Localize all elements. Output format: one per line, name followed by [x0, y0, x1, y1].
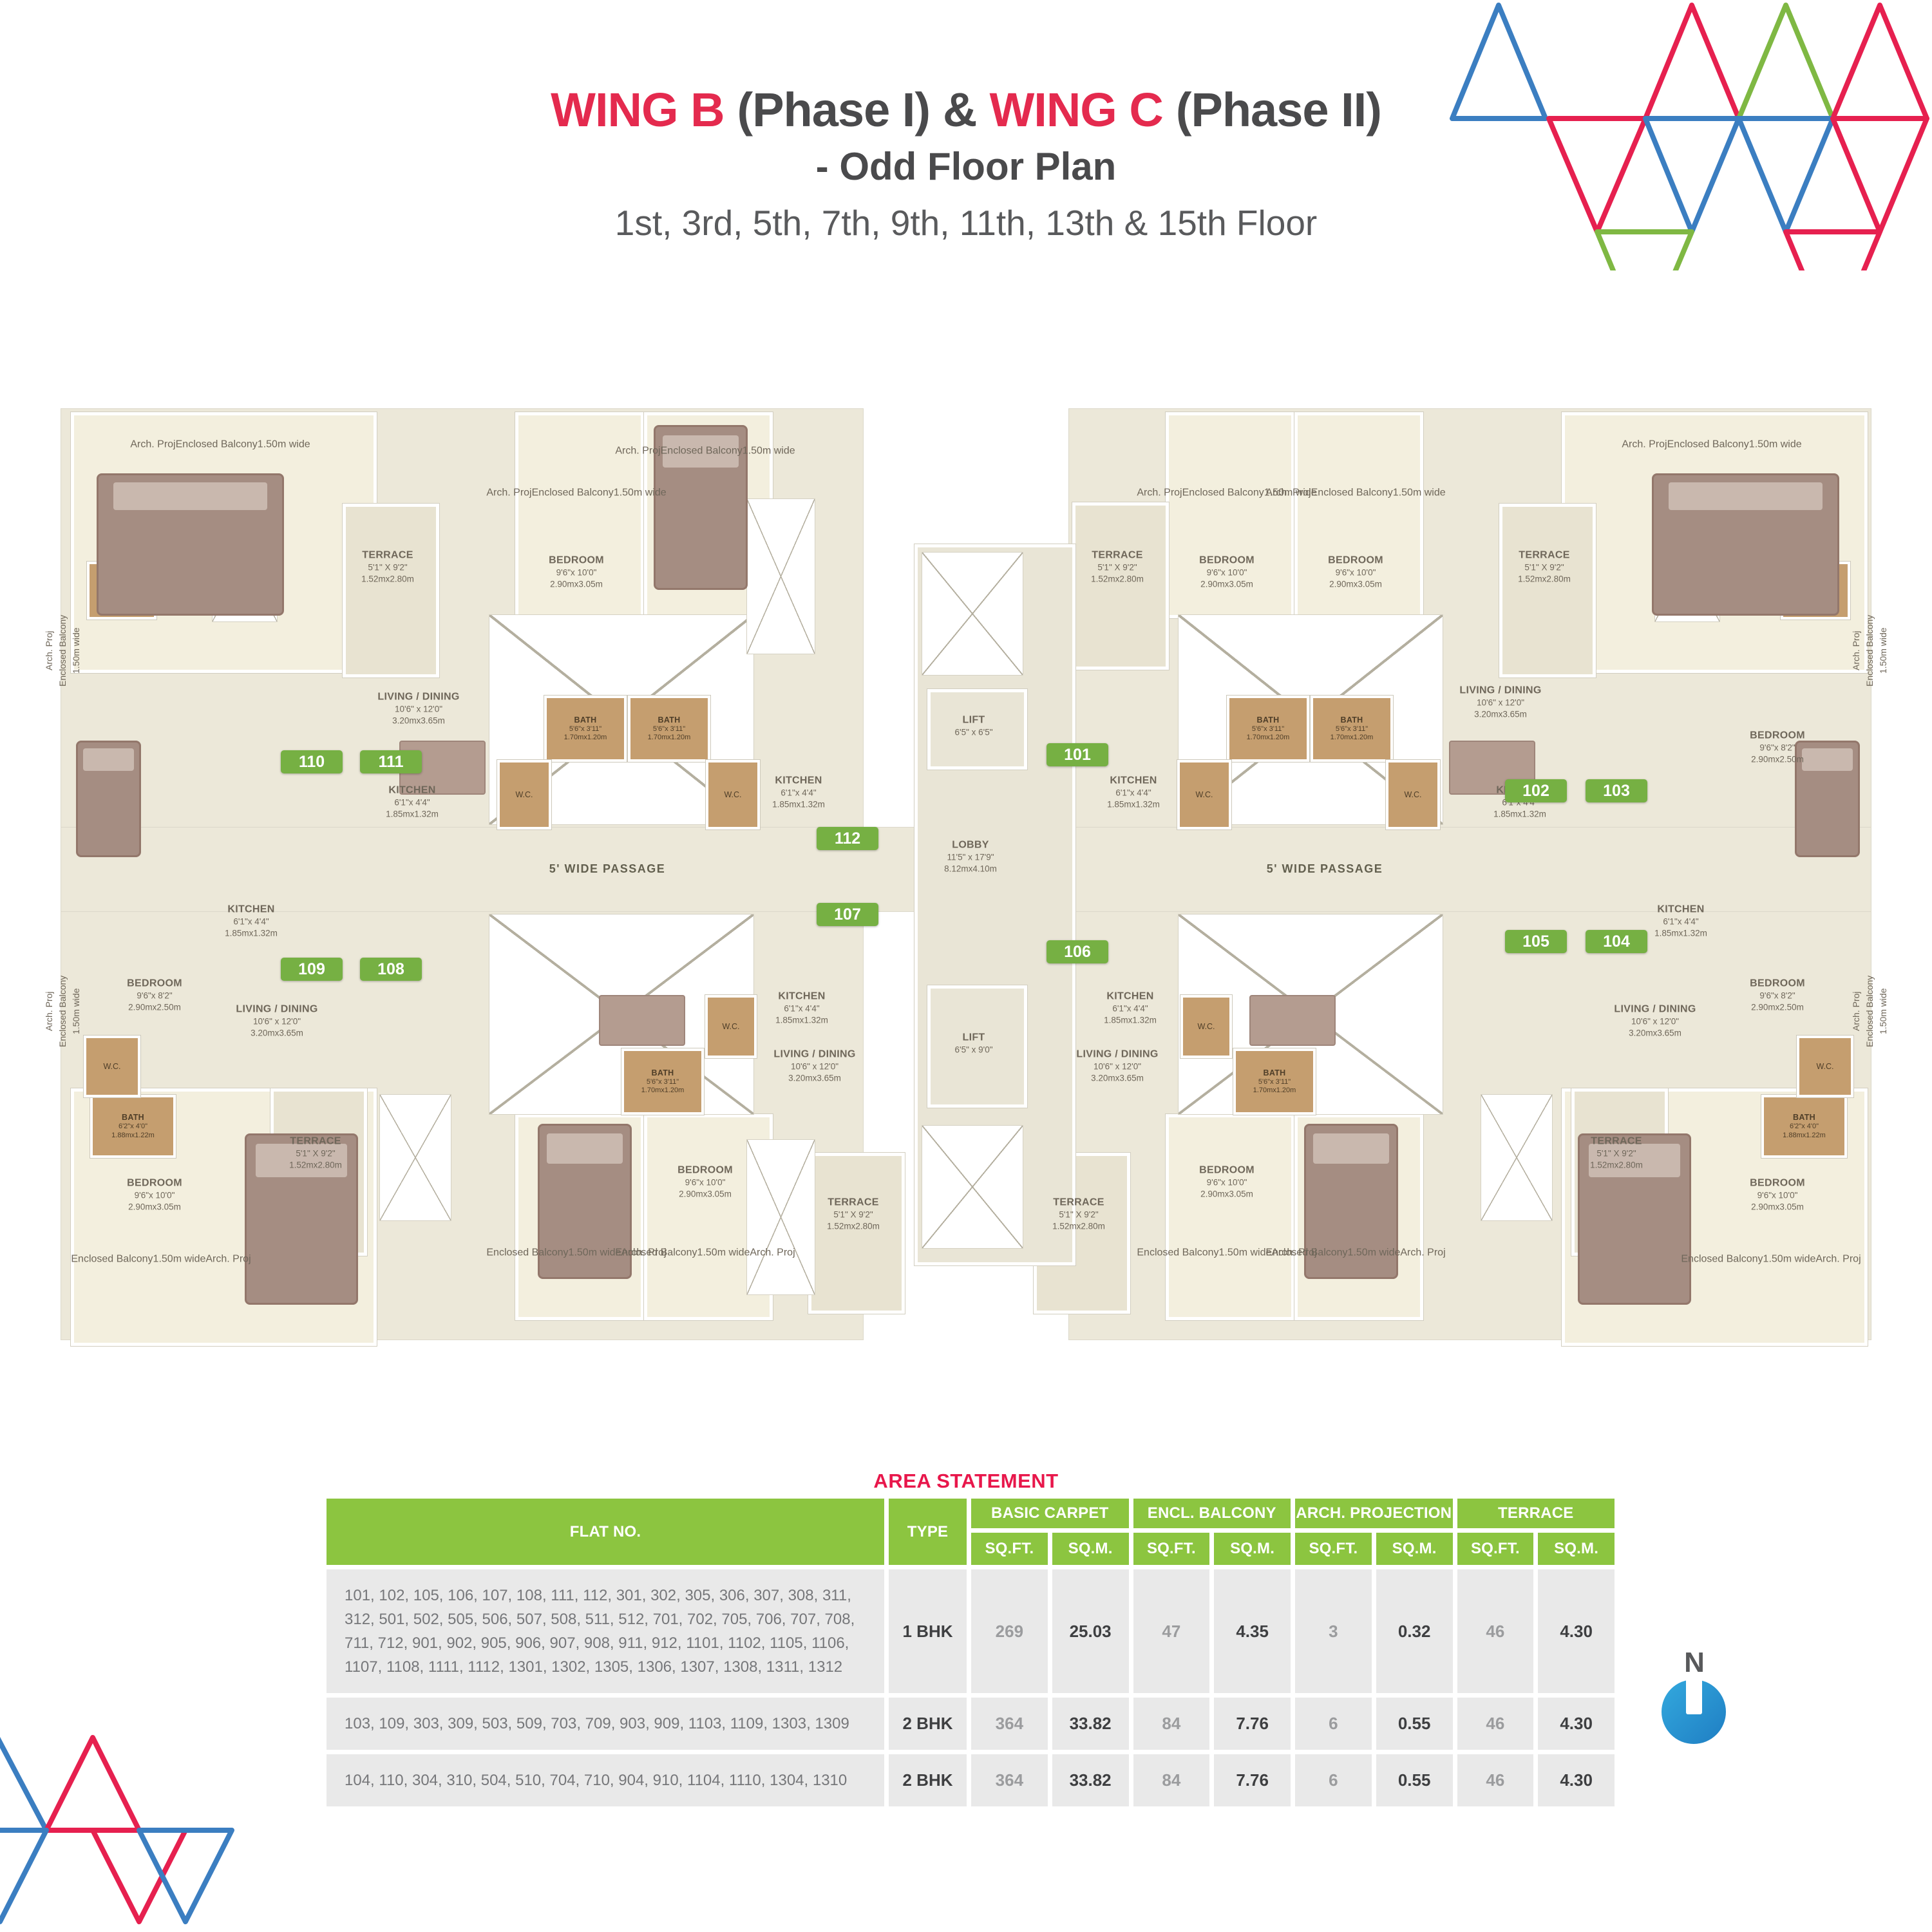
bedroom-label: BEDROOM9'6"x 8'2"2.90mx2.50m [1750, 729, 1805, 766]
area-statement-table: FLAT NO. TYPE BASIC CARPET ENCL. BALCONY… [327, 1499, 1615, 1806]
kitchen-label: KITCHEN6'1"x 4'4"1.85mx1.32m [1107, 774, 1160, 811]
flat-badge-108: 108 [360, 958, 422, 981]
living-label: LIVING / DINING10'6" x 12'0"3.20mx3.65m [1459, 684, 1541, 721]
sub-sqm: SQ.M. [1538, 1533, 1615, 1565]
cell-value: 364 [971, 1754, 1048, 1806]
wc-label: W.C. [515, 790, 533, 800]
room-wc: W.C. [84, 1036, 140, 1097]
balcony-label: Arch. ProjEnclosed Balcony1.50m wide [1265, 486, 1445, 499]
cell-value: 33.82 [1052, 1698, 1129, 1750]
staircase [747, 499, 815, 654]
bedroom-label: BEDROOM9'6"x 10'0"2.90mx3.05m [1750, 1177, 1805, 1213]
sub-sqm: SQ.M. [1052, 1533, 1129, 1565]
wc-label: W.C. [103, 1062, 120, 1072]
wc-label: W.C. [1816, 1062, 1833, 1072]
bath-label: BATH [564, 715, 607, 725]
bath-label: BATH [1253, 1068, 1296, 1078]
room-bedroom [1166, 1114, 1294, 1320]
room-bath: BATH5'6"x 3'11"1.70mx1.20m [544, 696, 627, 762]
balcony-label: Enclosed Balcony1.50m wideArch. Proj [71, 1252, 251, 1265]
terrace-label: TERRACE5'1" X 9'2"1.52mx2.80m [361, 549, 414, 585]
cell-value: 3 [1295, 1569, 1372, 1693]
sub-sqft: SQ.FT. [1295, 1533, 1372, 1565]
sub-sqm: SQ.M. [1376, 1533, 1453, 1565]
balcony-label-rotated: Arch. ProjEnclosed Balcony1.50m wide [1850, 927, 1890, 1095]
room-terrace [1499, 504, 1596, 677]
staircase [922, 553, 1023, 675]
balcony-label-rotated: Arch. ProjEnclosed Balcony1.50m wide [1850, 567, 1890, 734]
row-type: 1 BHK [889, 1569, 967, 1693]
cell-value: 4.35 [1214, 1569, 1291, 1693]
flat-badge-104: 104 [1586, 930, 1647, 953]
bed-icon [97, 473, 284, 616]
cell-value: 6 [1295, 1698, 1372, 1750]
col-encl-balcony: ENCL. BALCONY [1133, 1499, 1291, 1528]
page-title: WING B(Phase I)&WING C(Phase II) [544, 82, 1388, 137]
col-type: TYPE [889, 1499, 967, 1565]
col-basic-carpet: BASIC CARPET [971, 1499, 1129, 1528]
row-flats: 103, 109, 303, 309, 503, 509, 703, 709, … [327, 1698, 884, 1750]
room-bath: BATH6'2"x 4'0"1.88mx1.22m [90, 1095, 176, 1158]
cell-value: 0.55 [1376, 1754, 1453, 1806]
balcony-label: Arch. ProjEnclosed Balcony1.50m wide [615, 444, 795, 457]
balcony-label: Enclosed Balcony1.50m wideArch. Proj [1681, 1252, 1861, 1265]
room-wc: W.C. [497, 760, 551, 829]
room-bath: BATH5'6"x 3'11"1.70mx1.20m [628, 696, 710, 762]
cell-value: 0.32 [1376, 1569, 1453, 1693]
col-terrace: TERRACE [1457, 1499, 1615, 1528]
terrace-label: TERRACE5'1" X 9'2"1.52mx2.80m [1518, 549, 1571, 585]
balcony-label: Enclosed Balcony1.50m wideArch. Proj [1265, 1245, 1445, 1259]
flat-badge-101: 101 [1046, 743, 1108, 766]
bedroom-label: BEDROOM9'6"x 10'0"2.90mx3.05m [677, 1164, 733, 1200]
brochure-page: WING B(Phase I)&WING C(Phase II) - Odd F… [0, 0, 1932, 1932]
room-wc: W.C. [706, 760, 760, 829]
cell-value: 7.76 [1214, 1698, 1291, 1750]
staircase [1481, 1095, 1552, 1220]
room-bath: BATH5'6"x 3'11"1.70mx1.20m [1311, 696, 1393, 762]
dining-table-icon [599, 995, 685, 1046]
terrace-label: TERRACE5'1" X 9'2"1.52mx2.80m [1052, 1196, 1105, 1233]
kitchen-label: KITCHEN6'1"x 4'4"1.85mx1.32m [775, 990, 828, 1027]
terrace-label: TERRACE5'1" X 9'2"1.52mx2.80m [289, 1135, 342, 1171]
cell-value: 46 [1457, 1698, 1534, 1750]
bath-label: BATH [648, 715, 691, 725]
room-wc: W.C. [1386, 760, 1440, 829]
balcony-label: Arch. ProjEnclosed Balcony1.50m wide [130, 437, 310, 451]
room-terrace [343, 504, 439, 677]
bath-label: BATH [1247, 715, 1290, 725]
living-label: LIVING / DINING10'6" x 12'0"3.20mx3.65m [773, 1048, 855, 1084]
room-bath: BATH5'6"x 3'11"1.70mx1.20m [1227, 696, 1309, 762]
triangle-decor-bottom-left [0, 1662, 258, 1932]
triangle-decor-top-right [1443, 0, 1932, 270]
bed-icon [1652, 473, 1839, 616]
wc-label: W.C. [722, 1022, 739, 1032]
living-label: LIVING / DINING10'6" x 12'0"3.20mx3.65m [377, 690, 459, 727]
cell-value: 7.76 [1214, 1754, 1291, 1806]
room-bath: BATH5'6"x 3'11"1.70mx1.20m [621, 1048, 704, 1115]
area-statement-title: AREA STATEMENT [873, 1470, 1058, 1493]
sub-sqft: SQ.FT. [1133, 1533, 1210, 1565]
kitchen-label: KITCHEN6'1"x 4'4"1.85mx1.32m [1104, 990, 1157, 1027]
kitchen-label: KITCHEN6'1"x 4'4"1.85mx1.32m [386, 784, 439, 820]
passage-label: 5' WIDE PASSAGE [549, 862, 665, 877]
bedroom-label: BEDROOM9'6"x 8'2"2.90mx2.50m [1750, 977, 1805, 1014]
flat-badge-107: 107 [817, 903, 878, 926]
lift-label: LIFT6'5" x 6'5" [954, 714, 992, 739]
terrace-label: TERRACE5'1" X 9'2"1.52mx2.80m [1091, 549, 1144, 585]
cell-value: 4.30 [1538, 1754, 1615, 1806]
row-flats: 104, 110, 304, 310, 504, 510, 704, 710, … [327, 1754, 884, 1806]
bath-label: BATH [1783, 1113, 1826, 1122]
room-bath: BATH5'6"x 3'11"1.70mx1.20m [1233, 1048, 1316, 1115]
flat-badge-110: 110 [281, 750, 343, 773]
col-flat-no: FLAT NO. [327, 1499, 884, 1565]
title-ampersand: & [943, 83, 976, 137]
balcony-label: Enclosed Balcony1.50m wideArch. Proj [615, 1245, 795, 1259]
room-terrace [808, 1153, 905, 1314]
bed-icon [76, 741, 141, 857]
kitchen-label: KITCHEN6'1"x 4'4"1.85mx1.32m [772, 774, 825, 811]
balcony-label-rotated: Arch. ProjEnclosed Balcony1.50m wide [43, 567, 83, 734]
floors-line: 1st, 3rd, 5th, 7th, 9th, 11th, 13th & 15… [615, 202, 1318, 243]
wc-label: W.C. [724, 790, 741, 800]
bedroom-label: BEDROOM9'6"x 10'0"2.90mx3.05m [1328, 554, 1383, 591]
title-phase-2: (Phase II) [1176, 83, 1381, 137]
north-compass-notch [1686, 1672, 1702, 1714]
wc-label: W.C. [1404, 790, 1421, 800]
flat-badge-112: 112 [817, 827, 878, 850]
bedroom-label: BEDROOM9'6"x 10'0"2.90mx3.05m [549, 554, 604, 591]
staircase [380, 1095, 451, 1220]
kitchen-label: KITCHEN6'1"x 4'4"1.85mx1.32m [1654, 903, 1707, 940]
passage-label: 5' WIDE PASSAGE [1267, 862, 1383, 877]
cell-value: 84 [1133, 1698, 1210, 1750]
bedroom-label: BEDROOM9'6"x 8'2"2.90mx2.50m [127, 977, 182, 1014]
balcony-label: Arch. ProjEnclosed Balcony1.50m wide [1622, 437, 1801, 451]
wc-label: W.C. [1197, 1022, 1215, 1032]
bath-label: BATH [641, 1068, 685, 1078]
row-flats: 101, 102, 105, 106, 107, 108, 111, 112, … [327, 1569, 884, 1693]
cell-value: 46 [1457, 1754, 1534, 1806]
living-label: LIVING / DINING10'6" x 12'0"3.20mx3.65m [1614, 1003, 1696, 1039]
cell-value: 364 [971, 1698, 1048, 1750]
staircase [922, 1126, 1023, 1248]
cell-value: 269 [971, 1569, 1048, 1693]
cell-value: 0.55 [1376, 1698, 1453, 1750]
cell-value: 25.03 [1052, 1569, 1129, 1693]
cell-value: 46 [1457, 1569, 1534, 1693]
title-wing-b: WING B [551, 83, 724, 137]
flat-badge-109: 109 [281, 958, 343, 981]
living-label: LIVING / DINING10'6" x 12'0"3.20mx3.65m [1076, 1048, 1158, 1084]
cell-value: 6 [1295, 1754, 1372, 1806]
title-phase-1: (Phase I) [737, 83, 930, 137]
cell-value: 33.82 [1052, 1754, 1129, 1806]
flat-badge-111: 111 [360, 750, 422, 773]
flat-badge-102: 102 [1505, 779, 1567, 802]
sub-sqft: SQ.FT. [971, 1533, 1048, 1565]
living-label: LIVING / DINING10'6" x 12'0"3.20mx3.65m [236, 1003, 317, 1039]
sub-sqft: SQ.FT. [1457, 1533, 1534, 1565]
balcony-label: Arch. ProjEnclosed Balcony1.50m wide [486, 486, 666, 499]
flat-badge-103: 103 [1586, 779, 1647, 802]
terrace-label: TERRACE5'1" X 9'2"1.52mx2.80m [827, 1196, 880, 1233]
lift-label: LIFT6'5" x 9'0" [954, 1031, 992, 1056]
flat-badge-105: 105 [1505, 930, 1567, 953]
cell-value: 4.30 [1538, 1569, 1615, 1693]
page-subtitle: - Odd Floor Plan [816, 144, 1117, 189]
lobby-label: LOBBY11'5" x 17'9"8.12mx4.10m [944, 838, 997, 875]
room-wc: W.C. [1177, 760, 1231, 829]
cell-value: 4.30 [1538, 1698, 1615, 1750]
cell-value: 84 [1133, 1754, 1210, 1806]
kitchen-label: KITCHEN6'1"x 4'4"1.85mx1.32m [225, 903, 278, 940]
bath-label: BATH [1331, 715, 1374, 725]
bedroom-label: BEDROOM9'6"x 10'0"2.90mx3.05m [1199, 554, 1255, 591]
title-wing-c: WING C [989, 83, 1162, 137]
bedroom-label: BEDROOM9'6"x 10'0"2.90mx3.05m [127, 1177, 182, 1213]
bedroom-label: BEDROOM9'6"x 10'0"2.90mx3.05m [1199, 1164, 1255, 1200]
staircase [747, 1140, 815, 1294]
room-terrace [1072, 502, 1169, 670]
terrace-label: TERRACE5'1" X 9'2"1.52mx2.80m [1590, 1135, 1643, 1171]
row-type: 2 BHK [889, 1754, 967, 1806]
dining-table-icon [1249, 995, 1336, 1046]
sub-sqm: SQ.M. [1214, 1533, 1291, 1565]
balcony-label-rotated: Arch. ProjEnclosed Balcony1.50m wide [43, 927, 83, 1095]
col-arch-projection: ARCH. PROJECTION [1295, 1499, 1453, 1528]
flat-badge-106: 106 [1046, 940, 1108, 963]
cell-value: 47 [1133, 1569, 1210, 1693]
room-bath: BATH6'2"x 4'0"1.88mx1.22m [1761, 1095, 1847, 1158]
row-type: 2 BHK [889, 1698, 967, 1750]
bath-label: BATH [111, 1113, 155, 1122]
room-wc: W.C. [1180, 995, 1232, 1058]
room-wc: W.C. [1797, 1036, 1853, 1097]
wc-label: W.C. [1195, 790, 1213, 800]
room-wc: W.C. [705, 995, 757, 1058]
